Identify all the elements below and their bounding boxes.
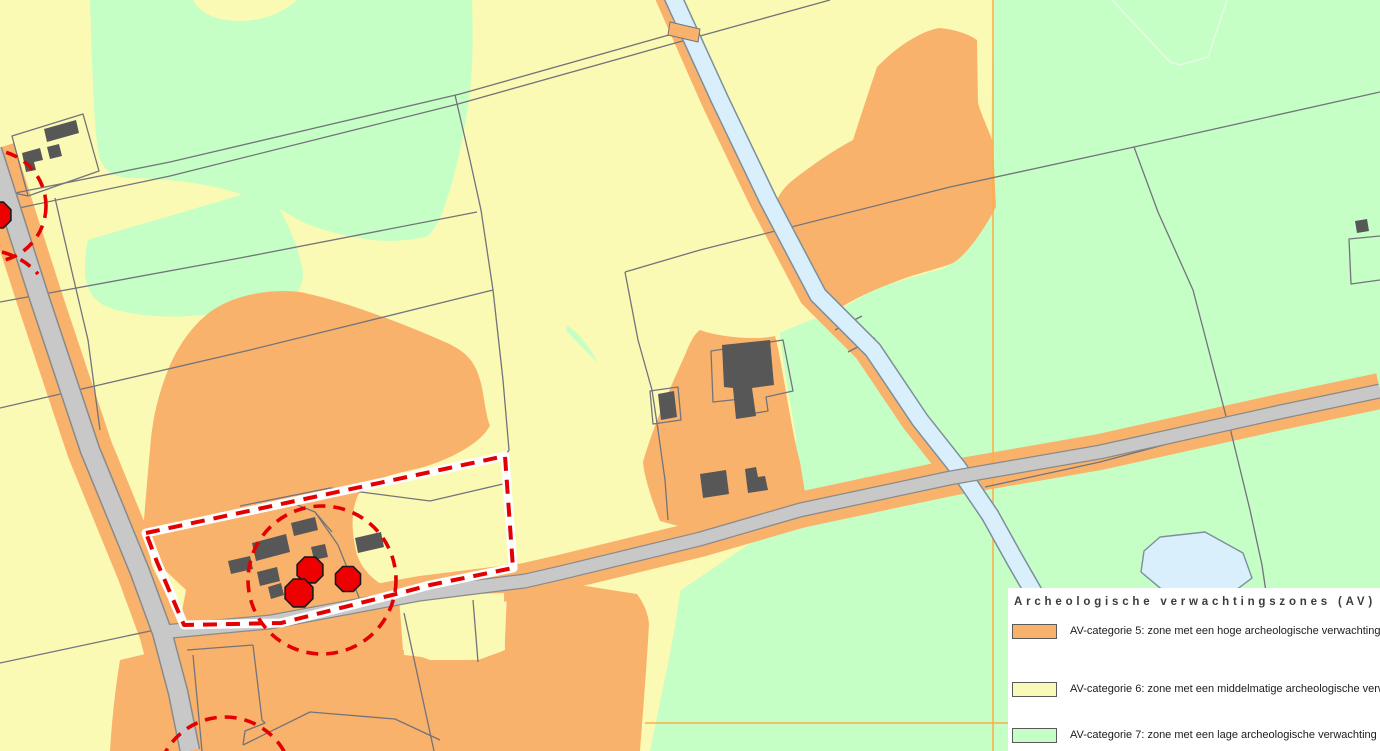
legend-label-av5: AV-categorie 5: zone met een hoge archeo… xyxy=(1070,625,1380,637)
legend-item-av6: AV-categorie 6: zone met een middelmatig… xyxy=(1012,680,1380,698)
legend-panel: Archeologische verwachtingszones (AV) AV… xyxy=(1008,588,1380,751)
swatch-high-expectation xyxy=(1012,624,1057,639)
swatch-medium-expectation xyxy=(1012,682,1057,697)
legend-item-av5: AV-categorie 5: zone met een hoge archeo… xyxy=(1012,622,1380,640)
marker-octagon xyxy=(336,567,361,592)
marker-octagon xyxy=(285,579,313,607)
legend-item-av7: AV-categorie 7: zone met een lage archeo… xyxy=(1012,726,1377,744)
legend-label-av7: AV-categorie 7: zone met een lage archeo… xyxy=(1070,729,1377,741)
legend-title: Archeologische verwachtingszones (AV) xyxy=(1014,596,1380,608)
swatch-low-expectation xyxy=(1012,728,1057,743)
legend-label-av6: AV-categorie 6: zone met een middelmatig… xyxy=(1070,683,1380,695)
